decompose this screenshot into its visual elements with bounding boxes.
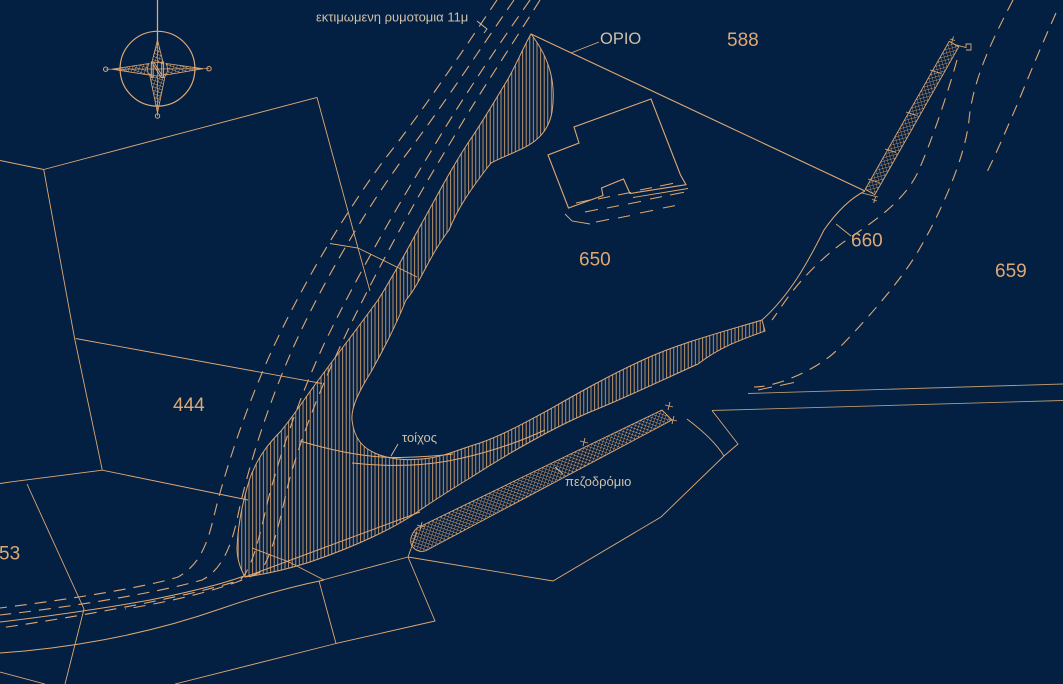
svg-text:53: 53 xyxy=(0,544,20,565)
svg-text:588: 588 xyxy=(727,30,759,51)
svg-text:πεζοδρόμιο: πεζοδρόμιο xyxy=(565,474,631,489)
svg-text:N: N xyxy=(150,58,166,83)
svg-text:τοίχος: τοίχος xyxy=(402,430,437,445)
svg-text:εκτιμωμενη ρυμοτομια 11μ: εκτιμωμενη ρυμοτομια 11μ xyxy=(316,10,468,25)
svg-text:444: 444 xyxy=(173,395,205,416)
svg-text:ΟΡΙΟ: ΟΡΙΟ xyxy=(600,30,641,48)
svg-text:660: 660 xyxy=(851,231,883,252)
svg-text:650: 650 xyxy=(579,250,611,271)
svg-text:659: 659 xyxy=(995,261,1027,282)
